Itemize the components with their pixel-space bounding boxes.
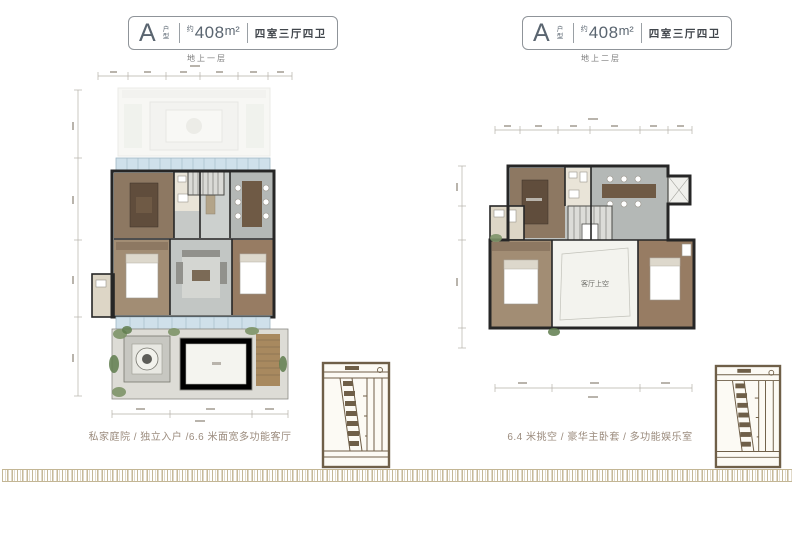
staircase-floor1 bbox=[188, 171, 224, 195]
flyer-canvas: A 户型 约 408 m² 四室三厅四卫 地上一层 bbox=[0, 0, 794, 536]
caption-floor2: 6.4 米挑空 / 豪华主卧套 / 多功能娱乐室 bbox=[475, 428, 725, 443]
approx-label: 约 bbox=[581, 24, 588, 34]
unit-letter: A bbox=[139, 21, 156, 46]
area-value: 408 bbox=[589, 23, 619, 43]
badge-divider bbox=[573, 23, 574, 43]
rooms-label: 四室三厅四卫 bbox=[255, 26, 327, 41]
interior-floor2: 客厅上空 bbox=[490, 166, 694, 358]
dimension-line-bottom bbox=[495, 382, 692, 398]
unit-word: 户型 bbox=[163, 26, 172, 40]
area-group: 约 408 m² bbox=[581, 23, 634, 43]
interior-floor1 bbox=[92, 171, 274, 317]
badge-divider bbox=[179, 23, 180, 43]
dimension-line-top bbox=[98, 65, 292, 80]
floor-plan-floor1 bbox=[70, 64, 305, 428]
floor-plan-floor2: 客厅上空 bbox=[450, 88, 710, 418]
unit-badge-floor1: A 户型 约 408 m² 四室三厅四卫 bbox=[128, 16, 338, 50]
unit-badge-floor2: A 户型 约 408 m² 四室三厅四卫 bbox=[522, 16, 732, 50]
area-value: 408 bbox=[195, 23, 225, 43]
window-band-south bbox=[116, 317, 270, 329]
staircase-floor2 bbox=[568, 206, 612, 240]
balcony-outline bbox=[555, 328, 637, 358]
area-unit: m² bbox=[619, 23, 634, 38]
badge-divider bbox=[247, 23, 248, 43]
dimension-line-bottom bbox=[112, 408, 288, 422]
rooms-label: 四室三厅四卫 bbox=[649, 26, 721, 41]
floor-label-floor1: 地上一层 bbox=[128, 53, 286, 64]
void-label: 客厅上空 bbox=[581, 279, 609, 288]
dimension-line-left bbox=[456, 166, 466, 348]
approx-label: 约 bbox=[187, 24, 194, 34]
unit-word: 户型 bbox=[557, 26, 566, 40]
site-location-map-floor2 bbox=[714, 364, 782, 469]
dimension-line-left bbox=[72, 90, 82, 396]
wood-deck bbox=[256, 334, 280, 386]
window-band-north bbox=[116, 158, 270, 171]
ghost-courtyard bbox=[118, 88, 270, 156]
unit-letter: A bbox=[533, 21, 550, 46]
area-unit: m² bbox=[225, 23, 240, 38]
greek-key-border bbox=[2, 469, 792, 482]
area-group: 约 408 m² bbox=[187, 23, 240, 43]
badge-divider bbox=[641, 23, 642, 43]
caption-floor1: 私家庭院 / 独立入户 /6.6 米面宽多功能客厅 bbox=[65, 428, 315, 443]
site-location-map-floor1 bbox=[321, 361, 391, 469]
private-courtyard bbox=[109, 326, 288, 399]
floor-label-floor2: 地上二层 bbox=[522, 53, 680, 64]
dimension-line-top bbox=[495, 118, 692, 134]
